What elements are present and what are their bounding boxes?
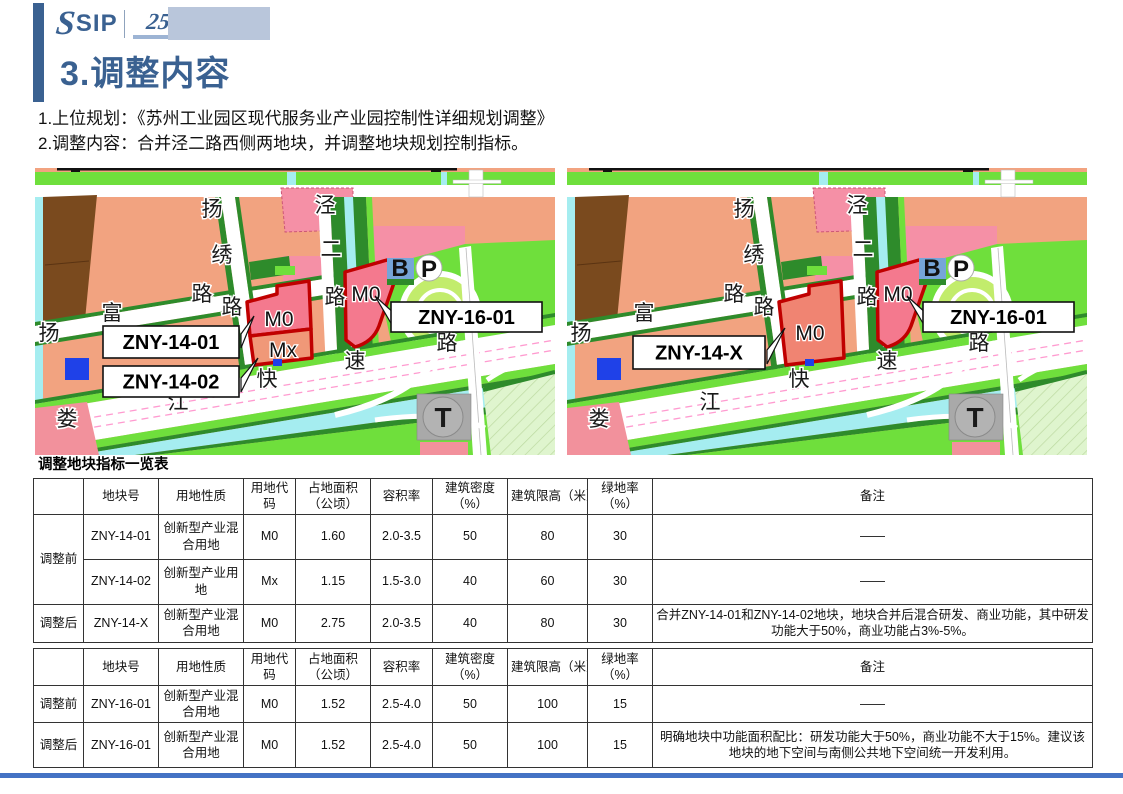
svg-text:绣: 绣 — [744, 244, 765, 267]
svg-text:M0: M0 — [883, 283, 912, 306]
svg-text:富: 富 — [634, 302, 655, 325]
svg-text:速: 速 — [345, 350, 366, 373]
svg-text:快: 快 — [257, 368, 278, 391]
stage-cell: 调整前 — [34, 514, 84, 604]
indicator-table: 地块号用地性质用地代码占地面积（公顷）容积率建筑密度（%）建筑限高（米）绿地率（… — [33, 648, 1093, 768]
cell-code: M0 — [244, 686, 296, 723]
cell-far: 2.0-3.5 — [371, 514, 433, 559]
col-header: 地块号 — [84, 649, 159, 686]
sip-logo-text: SIP — [76, 10, 118, 38]
bus-stop-marker: B — [919, 255, 946, 285]
table-row: 调整后ZNY-16-01创新型产业混合用地M01.522.5-4.0501001… — [34, 723, 1093, 768]
cell-area: 1.60 — [296, 514, 371, 559]
cell-plot: ZNY-14-01 — [84, 514, 159, 559]
cell-density: 40 — [433, 604, 508, 642]
col-header: 容积率 — [371, 649, 433, 686]
table-row: 调整前ZNY-14-01创新型产业混合用地M01.602.0-3.5508030… — [34, 514, 1093, 559]
svg-text:路: 路 — [222, 296, 243, 319]
col-header: 用地性质 — [159, 649, 244, 686]
svg-text:江: 江 — [700, 391, 721, 414]
col-header: 用地性质 — [159, 479, 244, 515]
indicator-table-zny16: 地块号用地性质用地代码占地面积（公顷）容积率建筑密度（%）建筑限高（米）绿地率（… — [33, 648, 1092, 768]
cell-density: 40 — [433, 559, 508, 604]
slide: S SIP 25 3.调整内容 1.上位规划：《苏州工业园区现代服务业产业园控制… — [0, 0, 1123, 794]
table-section-title: 调整地块指标一览表 — [38, 453, 169, 474]
col-header: 建筑密度（%） — [433, 479, 508, 515]
indicator-table-zny14: 地块号用地性质用地代码占地面积（公顷）容积率建筑密度（%）建筑限高（米）绿地率（… — [33, 478, 1092, 643]
svg-text:ZNY-16-01: ZNY-16-01 — [418, 307, 515, 329]
svg-text:ZNY-14-02: ZNY-14-02 — [123, 372, 220, 394]
cell-green: 15 — [588, 686, 653, 723]
table-row: 调整后ZNY-14-X创新型产业混合用地M02.752.0-3.5408030合… — [34, 604, 1093, 642]
cell-remark: —— — [653, 559, 1093, 604]
sip-logo: S SIP 25 — [56, 6, 185, 42]
bus-stop-marker: B — [387, 255, 414, 285]
table-row: ZNY-14-02创新型产业用地Mx1.151.5-3.0406030—— — [34, 559, 1093, 604]
col-header: 用地代码 — [244, 649, 296, 686]
cell-use: 创新型产业混合用地 — [159, 604, 244, 642]
stage-cell: 调整后 — [34, 604, 84, 642]
col-header: 绿地率（%） — [588, 479, 653, 515]
svg-text:扬: 扬 — [39, 322, 60, 345]
svg-text:扬: 扬 — [734, 198, 755, 221]
col-header — [34, 479, 84, 515]
title-accent-bar — [33, 3, 44, 102]
intro-line-2: 2.调整内容：合并泾二路西侧两地块，并调整地块规划控制指标。 — [38, 131, 554, 156]
cell-height: 60 — [508, 559, 588, 604]
transport-hub-marker: T — [417, 394, 471, 440]
col-header: 地块号 — [84, 479, 159, 515]
cell-area: 1.52 — [296, 686, 371, 723]
svg-text:娄: 娄 — [57, 408, 78, 431]
cell-height: 80 — [508, 514, 588, 559]
col-header: 容积率 — [371, 479, 433, 515]
svg-text:泾: 泾 — [847, 194, 868, 217]
cell-far: 1.5-3.0 — [371, 559, 433, 604]
plan-map-after: TBP扬绣路泾二路扬富路娄江快速路M0M0ZNY-14-XZNY-16-01 — [567, 168, 1087, 455]
cell-height: 100 — [508, 723, 588, 768]
svg-text:路: 路 — [857, 286, 878, 309]
cell-code: M0 — [244, 514, 296, 559]
svg-text:P: P — [953, 256, 969, 283]
footer-accent-bar — [0, 773, 1123, 778]
svg-text:T: T — [966, 402, 983, 433]
cell-density: 50 — [433, 723, 508, 768]
cell-height: 100 — [508, 686, 588, 723]
col-header: 建筑限高（米） — [508, 649, 588, 686]
svg-text:Mx: Mx — [269, 339, 297, 362]
header-logo-plate — [168, 7, 270, 40]
col-header: 备注 — [653, 479, 1093, 515]
svg-text:娄: 娄 — [589, 408, 610, 431]
cell-plot: ZNY-14-02 — [84, 559, 159, 604]
svg-text:路: 路 — [724, 283, 745, 306]
transport-hub-marker: T — [949, 394, 1003, 440]
svg-text:二: 二 — [321, 238, 342, 261]
cell-plot: ZNY-16-01 — [84, 723, 159, 768]
col-header — [34, 649, 84, 686]
cell-green: 30 — [588, 514, 653, 559]
plan-map-before: TBP扬绣路泾二路扬富路娄江快速路M0MxM0ZNY-14-01ZNY-14-0… — [35, 168, 555, 455]
cell-use: 创新型产业混合用地 — [159, 723, 244, 768]
col-header: 绿地率（%） — [588, 649, 653, 686]
stage-cell: 调整前 — [34, 686, 84, 723]
col-header: 建筑密度（%） — [433, 649, 508, 686]
intro-line-1: 1.上位规划：《苏州工业园区现代服务业产业园控制性详细规划调整》 — [38, 106, 554, 131]
svg-text:富: 富 — [102, 302, 123, 325]
svg-text:M0: M0 — [795, 322, 824, 345]
cell-code: M0 — [244, 604, 296, 642]
col-header: 备注 — [653, 649, 1093, 686]
svg-text:ZNY-16-01: ZNY-16-01 — [950, 307, 1047, 329]
col-header: 建筑限高（米） — [508, 479, 588, 515]
svg-text:ZNY-14-01: ZNY-14-01 — [123, 332, 220, 354]
sip-logo-mark: S — [54, 7, 76, 41]
cell-area: 2.75 — [296, 604, 371, 642]
plot-callout-ZNY-16-01: ZNY-16-01 — [375, 296, 542, 332]
cell-green: 30 — [588, 559, 653, 604]
intro-text: 1.上位规划：《苏州工业园区现代服务业产业园控制性详细规划调整》 2.调整内容：… — [38, 106, 554, 156]
cell-code: Mx — [244, 559, 296, 604]
svg-text:M0: M0 — [351, 283, 380, 306]
cell-remark: —— — [653, 686, 1093, 723]
svg-text:T: T — [434, 402, 451, 433]
planning-map: TBP扬绣路泾二路扬富路娄江快速路M0MxM0ZNY-14-01ZNY-14-0… — [35, 168, 555, 455]
table-header-row: 地块号用地性质用地代码占地面积（公顷）容积率建筑密度（%）建筑限高（米）绿地率（… — [34, 649, 1093, 686]
svg-text:路: 路 — [969, 332, 990, 355]
svg-text:速: 速 — [877, 350, 898, 373]
cell-far: 2.5-4.0 — [371, 686, 433, 723]
svg-text:路: 路 — [325, 286, 346, 309]
cell-green: 15 — [588, 723, 653, 768]
plot-callout-ZNY-16-01: ZNY-16-01 — [907, 296, 1074, 332]
cell-remark: —— — [653, 514, 1093, 559]
cell-use: 创新型产业混合用地 — [159, 686, 244, 723]
svg-text:B: B — [391, 255, 408, 282]
svg-text:快: 快 — [789, 368, 810, 391]
logo-divider — [124, 10, 125, 38]
svg-text:P: P — [421, 256, 437, 283]
cell-code: M0 — [244, 723, 296, 768]
cell-height: 80 — [508, 604, 588, 642]
svg-text:二: 二 — [853, 238, 874, 261]
cell-far: 2.0-3.5 — [371, 604, 433, 642]
cell-green: 30 — [588, 604, 653, 642]
svg-text:M0: M0 — [264, 308, 293, 331]
svg-text:泾: 泾 — [315, 194, 336, 217]
indicator-table: 地块号用地性质用地代码占地面积（公顷）容积率建筑密度（%）建筑限高（米）绿地率（… — [33, 478, 1093, 643]
cell-use: 创新型产业混合用地 — [159, 514, 244, 559]
col-header: 占地面积（公顷） — [296, 649, 371, 686]
cell-density: 50 — [433, 686, 508, 723]
svg-text:扬: 扬 — [202, 198, 223, 221]
col-header: 占地面积（公顷） — [296, 479, 371, 515]
cell-plot: ZNY-14-X — [84, 604, 159, 642]
svg-text:绣: 绣 — [212, 244, 233, 267]
svg-text:ZNY-14-X: ZNY-14-X — [655, 343, 743, 365]
svg-text:路: 路 — [754, 296, 775, 319]
svg-text:B: B — [923, 255, 940, 282]
svg-text:扬: 扬 — [571, 322, 592, 345]
cell-area: 1.52 — [296, 723, 371, 768]
cell-remark: 合并ZNY-14-01和ZNY-14-02地块，地块合并后混合研发、商业功能，其… — [653, 604, 1093, 642]
svg-text:路: 路 — [192, 283, 213, 306]
cell-far: 2.5-4.0 — [371, 723, 433, 768]
stage-cell: 调整后 — [34, 723, 84, 768]
cell-use: 创新型产业用地 — [159, 559, 244, 604]
cell-remark: 明确地块中功能面积配比：研发功能大于50%，商业功能不大于15%。建议该地块的地… — [653, 723, 1093, 768]
page-title: 3.调整内容 — [60, 46, 230, 95]
cell-plot: ZNY-16-01 — [84, 686, 159, 723]
col-header: 用地代码 — [244, 479, 296, 515]
cell-area: 1.15 — [296, 559, 371, 604]
table-row: 调整前ZNY-16-01创新型产业混合用地M01.522.5-4.0501001… — [34, 686, 1093, 723]
planning-map: TBP扬绣路泾二路扬富路娄江快速路M0M0ZNY-14-XZNY-16-01 — [567, 168, 1087, 455]
cell-density: 50 — [433, 514, 508, 559]
table-header-row: 地块号用地性质用地代码占地面积（公顷）容积率建筑密度（%）建筑限高（米）绿地率（… — [34, 479, 1093, 515]
svg-text:路: 路 — [437, 332, 458, 355]
